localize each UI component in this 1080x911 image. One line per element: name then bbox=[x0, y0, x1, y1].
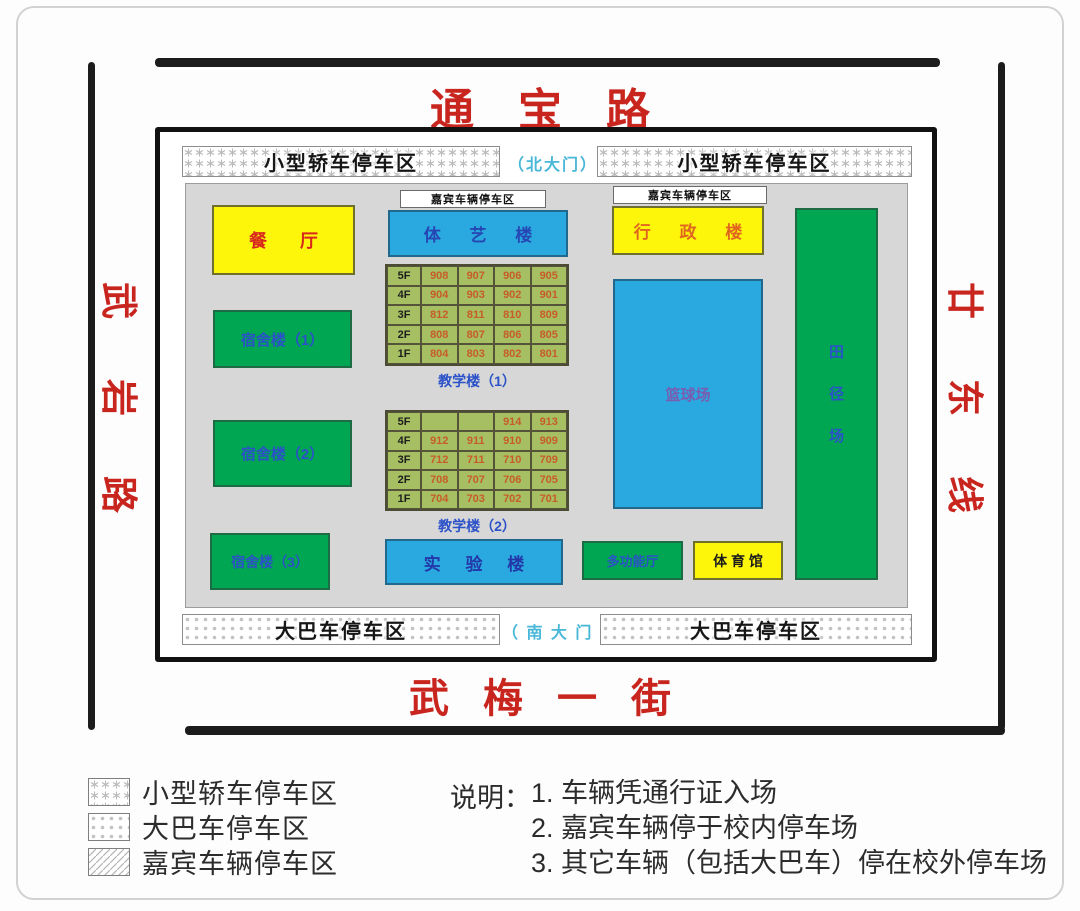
north-gate-label: （北大门） bbox=[508, 151, 598, 175]
legend-item-bus: 大巴车停车区 bbox=[88, 809, 338, 844]
guest-parking-label-1: 嘉宾车辆停车区 bbox=[400, 190, 546, 208]
building-gymnasium: 体 育 馆 bbox=[693, 541, 783, 580]
notes: 说明： 1. 车辆凭通行证入场 2. 嘉宾车辆停于校内停车场 3. 其它车辆（包… bbox=[450, 776, 1047, 881]
legend-item-guest: 嘉宾车辆停车区 bbox=[88, 844, 338, 879]
basketball-court: 篮球场 bbox=[613, 279, 763, 509]
road-edge-right bbox=[998, 62, 1005, 730]
table-row: 3F 712 711 710 709 bbox=[387, 451, 567, 470]
legend-item-small-car: 小型轿车停车区 bbox=[88, 774, 338, 809]
teaching-building-2-table: 5F 914 913 4F 912 911 910 909 3F 712 711… bbox=[385, 410, 569, 511]
parking-strip-top-right: 小型轿车停车区 bbox=[597, 146, 912, 177]
campus-wall: 小型轿车停车区 （北大门） 小型轿车停车区 餐 厅 嘉宾车辆停车区 体 艺 楼 … bbox=[155, 127, 937, 662]
campus-parking-map: 通宝路 武梅一街 武 岩 路 廿 东 线 小型轿车停车区 （北大门） 小型轿车停… bbox=[0, 0, 1080, 911]
parking-strip-label: 大巴车停车区 bbox=[183, 615, 499, 644]
building-dorm-3: 宿舍楼（3） bbox=[210, 533, 330, 590]
table-row: 4F 904 903 902 901 bbox=[387, 286, 567, 306]
note-line: 1. 车辆凭通行证入场 bbox=[531, 776, 1047, 811]
teaching-building-1-table: 5F 908 907 906 905 4F 904 903 902 901 3F… bbox=[385, 264, 569, 366]
building-canteen: 餐 厅 bbox=[212, 205, 355, 275]
road-edge-bottom bbox=[185, 726, 1005, 735]
table-row: 3F 812 811 810 809 bbox=[387, 305, 567, 325]
legend-swatch-dots bbox=[88, 813, 130, 841]
legend-swatch-hatch bbox=[88, 848, 130, 876]
parking-strip-bottom-left: 大巴车停车区 bbox=[182, 614, 500, 645]
teaching-building-2-caption: 教学楼（2） bbox=[385, 516, 569, 536]
building-lab: 实 验 楼 bbox=[385, 539, 563, 585]
parking-strip-label: 小型轿车停车区 bbox=[598, 147, 911, 176]
road-edge-left bbox=[88, 62, 95, 730]
building-dorm-1: 宿舍楼（1） bbox=[213, 310, 352, 368]
notes-items: 1. 车辆凭通行证入场 2. 嘉宾车辆停于校内停车场 3. 其它车辆（包括大巴车… bbox=[531, 776, 1047, 881]
parking-strip-top-left: 小型轿车停车区 bbox=[182, 146, 500, 177]
building-admin: 行 政 楼 bbox=[612, 206, 764, 255]
parking-strip-label: 大巴车停车区 bbox=[601, 615, 911, 644]
parking-strip-label: 小型轿车停车区 bbox=[183, 147, 499, 176]
table-row: 4F 912 911 910 909 bbox=[387, 431, 567, 450]
table-row: 1F 804 803 802 801 bbox=[387, 344, 567, 364]
building-sports-arts: 体 艺 楼 bbox=[388, 210, 568, 257]
track-field: 田 径 场 bbox=[795, 208, 878, 580]
road-name-right: 廿 东 线 bbox=[946, 282, 983, 513]
road-name-left: 武 岩 路 bbox=[100, 282, 137, 513]
table-row: 2F 808 807 806 805 bbox=[387, 325, 567, 345]
road-edge-top bbox=[155, 58, 940, 67]
table-row: 1F 704 703 702 701 bbox=[387, 490, 567, 509]
table-row: 5F 908 907 906 905 bbox=[387, 266, 567, 286]
table-row: 5F 914 913 bbox=[387, 412, 567, 431]
guest-parking-label-2: 嘉宾车辆停车区 bbox=[613, 186, 767, 204]
table-row: 2F 708 707 706 705 bbox=[387, 470, 567, 489]
note-line: 3. 其它车辆（包括大巴车）停在校外停车场 bbox=[531, 846, 1047, 881]
parking-strip-bottom-right: 大巴车停车区 bbox=[600, 614, 912, 645]
teaching-building-1-caption: 教学楼（1） bbox=[385, 371, 569, 391]
note-line: 2. 嘉宾车辆停于校内停车场 bbox=[531, 811, 1047, 846]
building-multifunction-hall: 多功能厅 bbox=[582, 541, 683, 580]
building-dorm-2: 宿舍楼（2） bbox=[213, 420, 352, 487]
notes-title: 说明： bbox=[450, 776, 531, 881]
road-name-bottom: 武梅一街 bbox=[0, 666, 1080, 724]
legend: 小型轿车停车区 大巴车停车区 嘉宾车辆停车区 bbox=[88, 774, 338, 879]
legend-swatch-stars bbox=[88, 778, 130, 806]
